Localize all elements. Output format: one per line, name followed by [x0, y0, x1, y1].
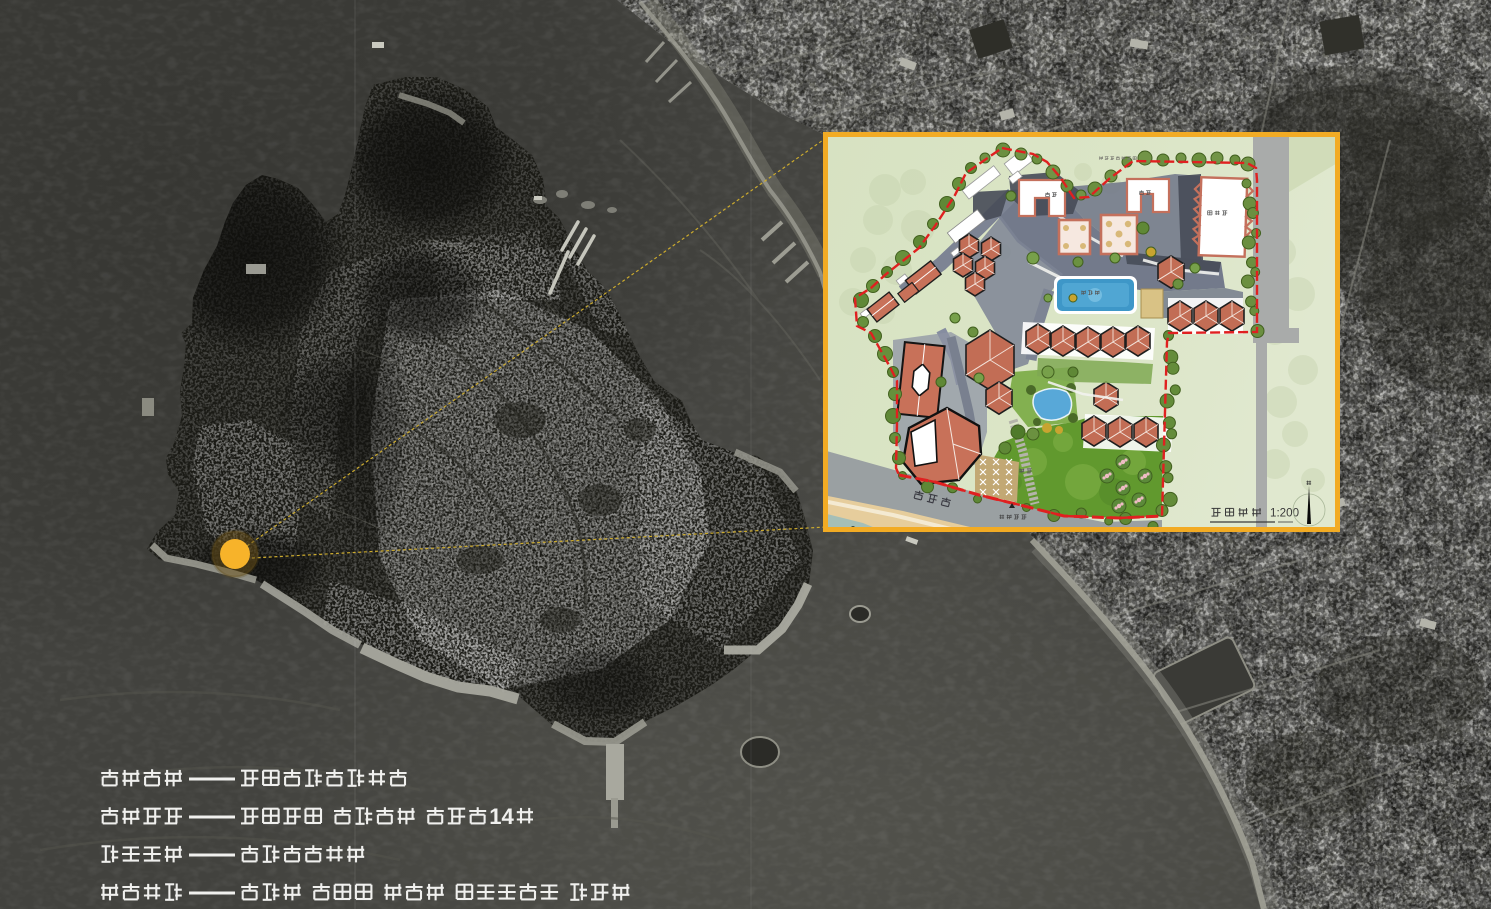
svg-text:14: 14	[489, 804, 514, 829]
